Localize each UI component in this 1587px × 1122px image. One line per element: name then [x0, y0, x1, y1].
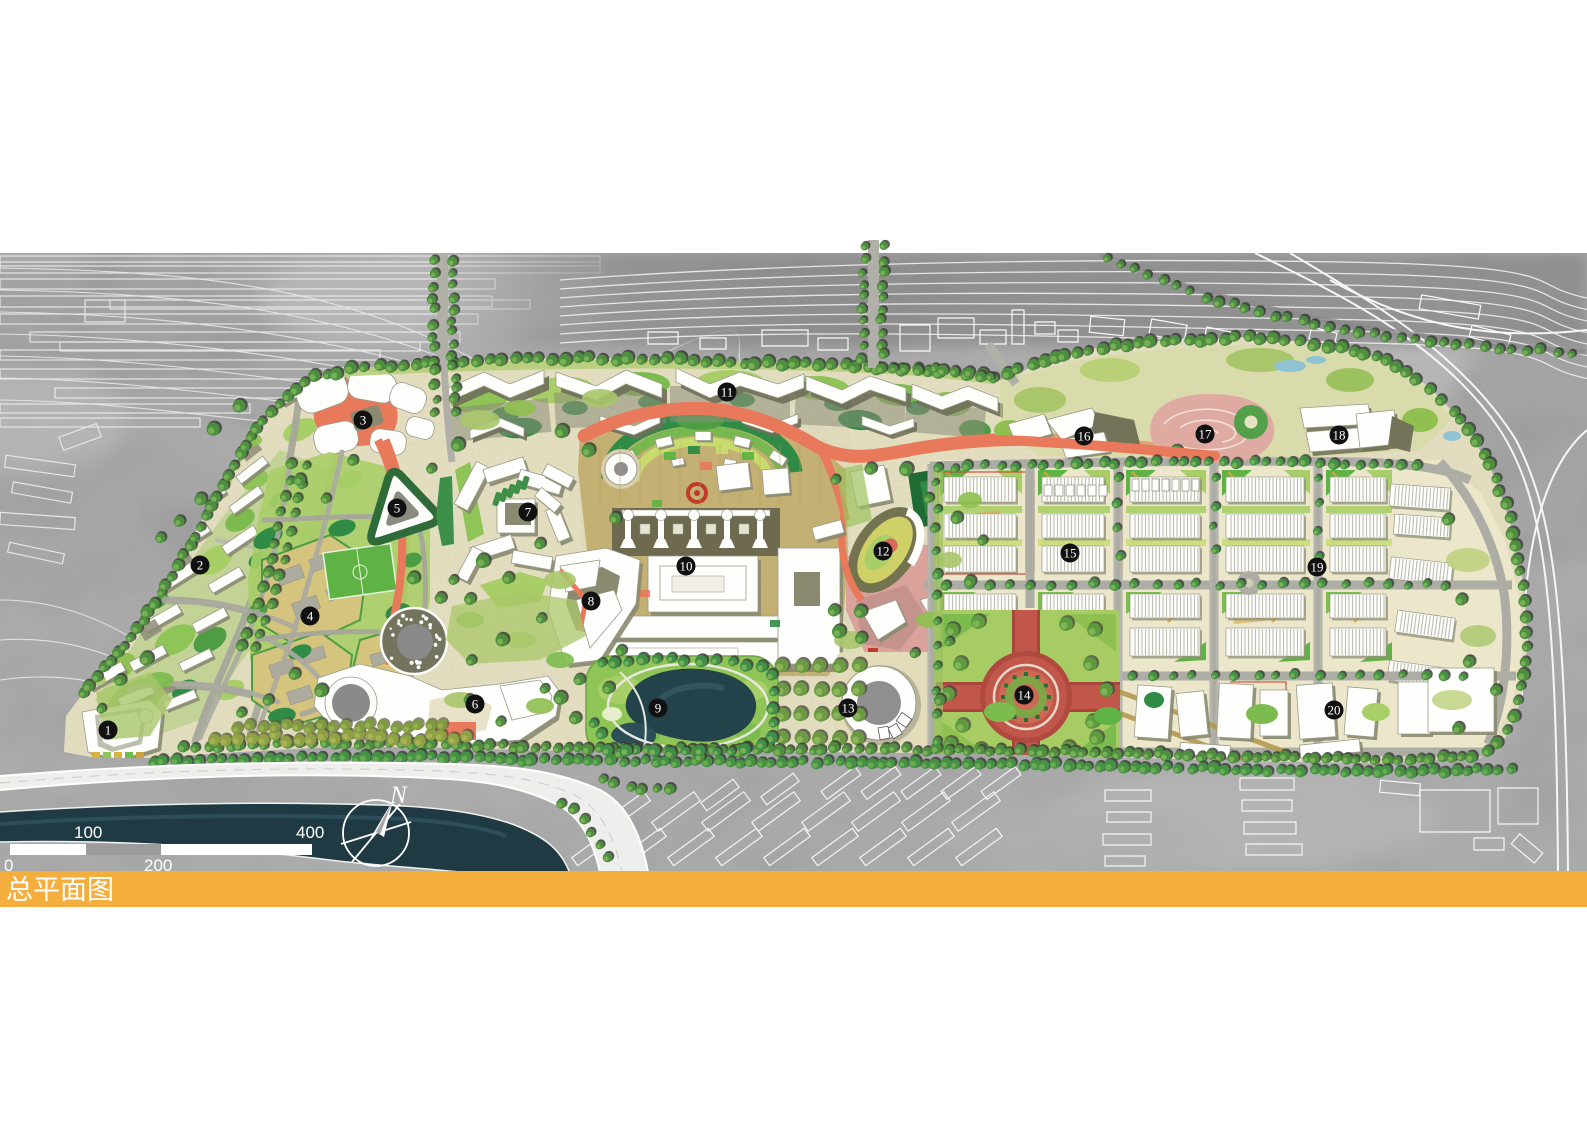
svg-text:7: 7	[525, 505, 532, 520]
svg-text:12: 12	[877, 544, 890, 559]
svg-text:9: 9	[655, 701, 662, 716]
svg-text:5: 5	[394, 501, 401, 516]
svg-text:总平面图: 总平面图	[6, 875, 114, 905]
svg-text:14: 14	[1018, 688, 1032, 703]
svg-text:8: 8	[588, 594, 595, 609]
svg-text:17: 17	[1199, 427, 1213, 442]
svg-text:11: 11	[721, 385, 734, 400]
svg-text:400: 400	[296, 823, 324, 842]
svg-text:20: 20	[1328, 703, 1341, 718]
svg-text:100: 100	[74, 823, 102, 842]
svg-text:N: N	[389, 782, 408, 809]
svg-text:4: 4	[307, 609, 314, 624]
svg-text:15: 15	[1064, 546, 1077, 561]
svg-text:18: 18	[1333, 428, 1346, 443]
svg-text:1: 1	[105, 723, 112, 738]
svg-text:2: 2	[197, 558, 204, 573]
svg-text:19: 19	[1311, 560, 1324, 575]
svg-text:10: 10	[680, 559, 693, 574]
svg-text:16: 16	[1078, 429, 1092, 444]
svg-text:6: 6	[472, 697, 479, 712]
svg-text:13: 13	[842, 701, 855, 716]
svg-text:3: 3	[360, 413, 367, 428]
